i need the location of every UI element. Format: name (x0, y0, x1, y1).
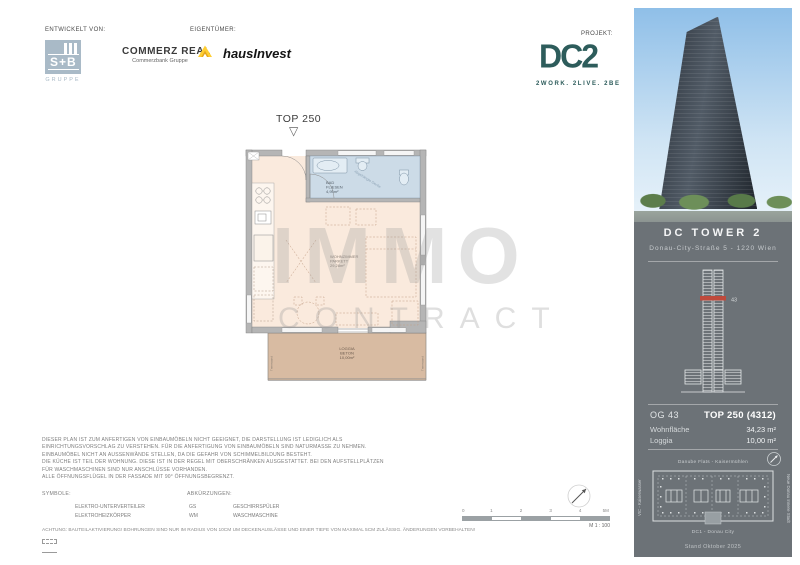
floor-43-marker (700, 296, 726, 301)
loggia-side-label-right: Trennwand (421, 356, 425, 371)
kitchen-sink (255, 211, 271, 224)
area-value: 34,23 m² (746, 425, 776, 434)
floor-43-label: 43 (731, 298, 737, 304)
disclaimer-line: ALLE ÖFFNUNGSFLÜGEL IN DER FASSADE MIT 9… (42, 474, 384, 481)
scalebar (462, 516, 610, 521)
dc2-site-highlight (705, 512, 721, 524)
divider (648, 449, 778, 450)
symbol-label: ELEKTROHEIZKÖRPER (75, 513, 131, 519)
sb-gruppe-label: GRUPPE (45, 77, 81, 83)
electric-radiator-symbol (42, 552, 57, 553)
hausinvest-wordmark: hausInvest (223, 46, 291, 61)
entrance-marker-icon: ▽ (289, 124, 298, 138)
loggia-row: Loggia 10,00 m² (650, 436, 776, 445)
site-label-left: VIC - Kaiserwasser (637, 468, 642, 528)
abbr-wm-label: WASCHMASCHINE (233, 513, 278, 519)
abbreviations-title: ABKÜRZUNGEN: (187, 491, 232, 497)
owner-label: EIGENTÜMER: (190, 27, 236, 33)
sidebar-title: DC TOWER 2 (634, 227, 792, 239)
trees-image (634, 186, 792, 214)
loggia-label: Loggia (650, 436, 673, 445)
toilet (400, 170, 409, 185)
unit-title: TOP 250 (276, 113, 321, 125)
floor-label: OG 43 (650, 410, 679, 421)
dc2-logo: DC2 (539, 37, 597, 76)
kitchen-cabinet (254, 235, 273, 261)
scale-label: M 1 : 100 (462, 523, 610, 529)
tower-building-image (659, 17, 757, 210)
floor-unit-row: OG 43 TOP 250 (4312) (650, 410, 776, 421)
sidebar-address: Donau-City-Straße 5 - 1220 Wien (634, 245, 792, 252)
electro-subdistributor-symbol (42, 539, 57, 544)
plan-document-page: ENTWICKELT VON: S+B GRUPPE EIGENTÜMER: C… (0, 0, 800, 565)
loggia-side-label-left: Trennwand (270, 356, 274, 371)
area-label: Wohnfläche (650, 425, 689, 434)
abbr-gs-label: GESCHIRRSPÜLER (233, 504, 279, 510)
shaft-symbol (248, 152, 259, 160)
sb-gruppe-logo: S+B (45, 40, 81, 74)
sb-logo-bar (64, 43, 67, 54)
disclaimer-line: FÜR WASCHMASCHINEN SIND NUR ANSCHLÜSSE V… (42, 467, 384, 474)
symbols-title: SYMBOLE: (42, 491, 71, 497)
unit-number: TOP 250 (4312) (704, 410, 776, 421)
sb-logo-bar (74, 43, 77, 54)
document-date: Stand Oktober 2025 (634, 544, 792, 550)
tower-photo (634, 8, 792, 222)
sb-logo-initials: S+B (48, 54, 79, 70)
abbr-gs: GS (189, 504, 196, 510)
svg-text:4,95m²: 4,95m² (326, 189, 339, 194)
watermark-immo: IMMO (272, 210, 530, 302)
divider (648, 404, 778, 405)
divider (648, 261, 778, 262)
building-section-diagram: 43 (678, 266, 748, 400)
bathtub (313, 158, 347, 173)
ground-image (634, 211, 792, 222)
disclaimer-block: DIESER PLAN IST ZUM ANFERTIGEN VON EINBA… (42, 437, 384, 481)
warning-line: ACHTUNG: BAUTEILAKTIVIERUNG! BOHRUNGEN S… (42, 528, 475, 533)
loggia-label: LOGGIA BETON 10,00m² (339, 346, 355, 360)
commerzbank-ribbon-icon (196, 43, 214, 61)
developed-by-label: ENTWICKELT VON: (45, 27, 105, 33)
watermark-contract: CONTRACT (278, 302, 565, 336)
site-label-bottom: DC1 - Donau City (634, 530, 792, 535)
disclaimer-line: EINRICHTUNGSVORSCHLAG ZU VERSTEHEN. FÜR … (42, 444, 384, 451)
commerzbank-gruppe-label: Commerzbank Gruppe (122, 58, 198, 64)
dc2-tagline: 2WORK. 2LIVE. 2BE (536, 81, 621, 87)
site-label-right: Neue Donau Innere Stadt (786, 468, 791, 528)
loggia-value: 10,00 m² (746, 436, 776, 445)
symbol-label: ELEKTRO-UNTERVERTEILER (75, 504, 145, 510)
north-arrow-icon (566, 483, 592, 509)
site-plan-diagram (650, 468, 776, 528)
site-label-top: Danube Flats - Kaisermühlen (634, 460, 792, 465)
area-row: Wohnfläche 34,23 m² (650, 425, 776, 434)
scalebar-ticks: 0 1 2 3 4 5M (462, 508, 610, 515)
project-sidebar: DC TOWER 2 Donau-City-Straße 5 - 1220 Wi… (634, 8, 792, 557)
abbr-wm: WM (189, 513, 198, 519)
sb-logo-bar (69, 43, 72, 54)
disclaimer-line: DIE KÜCHE IST TEIL DER WOHNUNG. DIESE IS… (42, 459, 384, 466)
svg-text:10,00m²: 10,00m² (340, 355, 355, 360)
